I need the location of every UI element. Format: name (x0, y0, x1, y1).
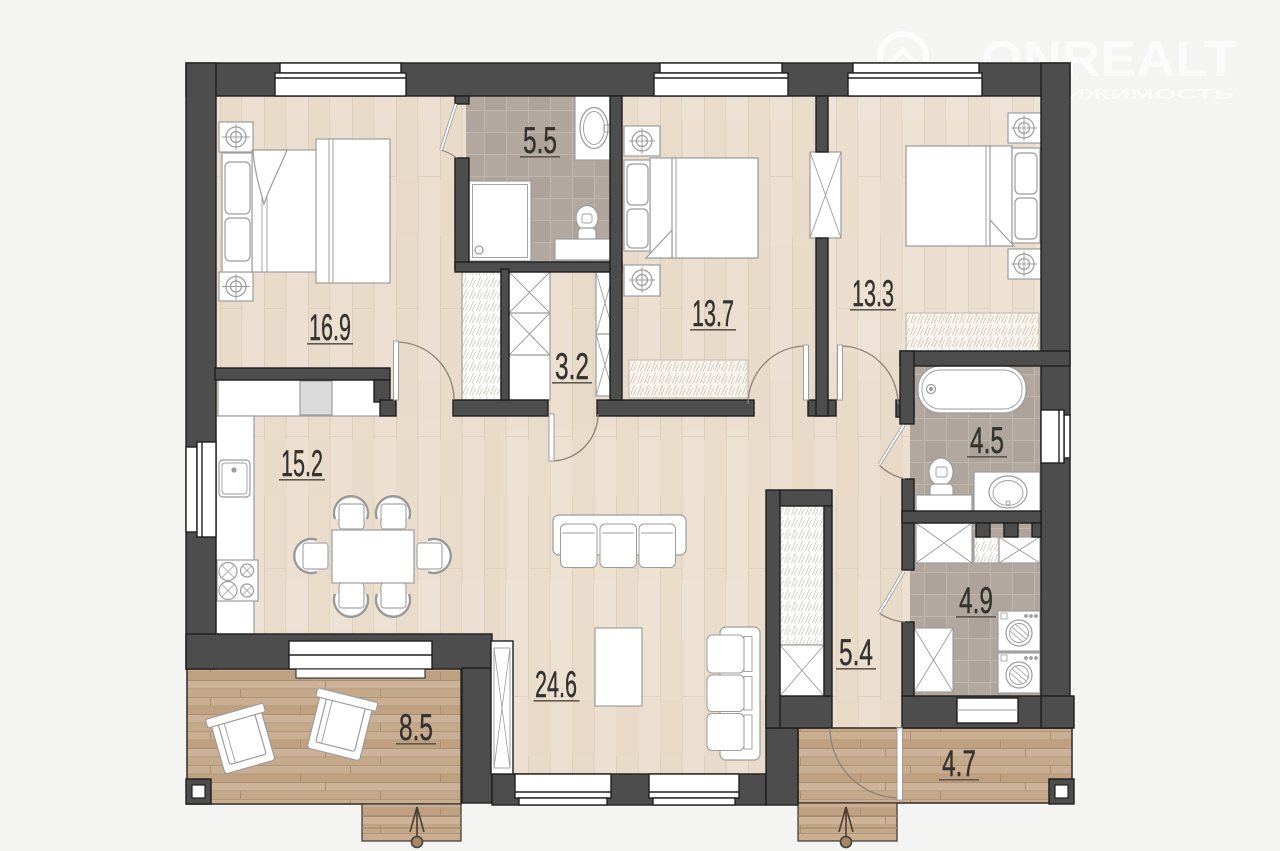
svg-text:4.9: 4.9 (959, 580, 993, 621)
svg-text:13.3: 13.3 (852, 273, 894, 314)
svg-text:4.7: 4.7 (942, 743, 976, 784)
svg-text:15.2: 15.2 (281, 443, 323, 484)
svg-text:3.2: 3.2 (555, 346, 589, 387)
svg-text:5.5: 5.5 (523, 120, 557, 161)
svg-text:8.5: 8.5 (399, 707, 433, 748)
svg-text:13.7: 13.7 (692, 293, 734, 334)
svg-text:16.9: 16.9 (309, 307, 351, 348)
svg-text:5.4: 5.4 (839, 632, 873, 673)
svg-text:4.5: 4.5 (970, 420, 1004, 461)
svg-text:24.6: 24.6 (535, 664, 577, 705)
